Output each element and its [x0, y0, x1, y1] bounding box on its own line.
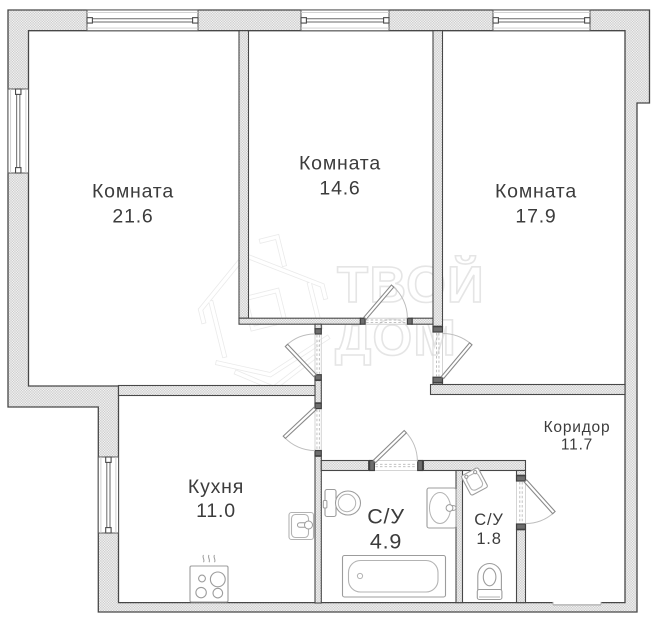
svg-text:С/У: С/У: [367, 505, 405, 529]
svg-text:Коридор: Коридор: [544, 419, 611, 436]
svg-text:21.6: 21.6: [112, 206, 153, 228]
svg-text:14.6: 14.6: [319, 178, 360, 200]
svg-text:11.0: 11.0: [196, 500, 236, 522]
svg-text:С/У: С/У: [474, 511, 503, 529]
svg-text:17.9: 17.9: [515, 206, 556, 228]
svg-text:ТВОЙ: ТВОЙ: [337, 255, 485, 313]
svg-text:Комната: Комната: [495, 181, 577, 203]
svg-text:1.8: 1.8: [476, 530, 501, 548]
svg-text:11.7: 11.7: [561, 437, 593, 454]
svg-text:Кухня: Кухня: [188, 476, 244, 498]
svg-text:Комната: Комната: [299, 153, 381, 175]
svg-text:Комната: Комната: [92, 181, 174, 203]
svg-text:4.9: 4.9: [370, 530, 402, 554]
